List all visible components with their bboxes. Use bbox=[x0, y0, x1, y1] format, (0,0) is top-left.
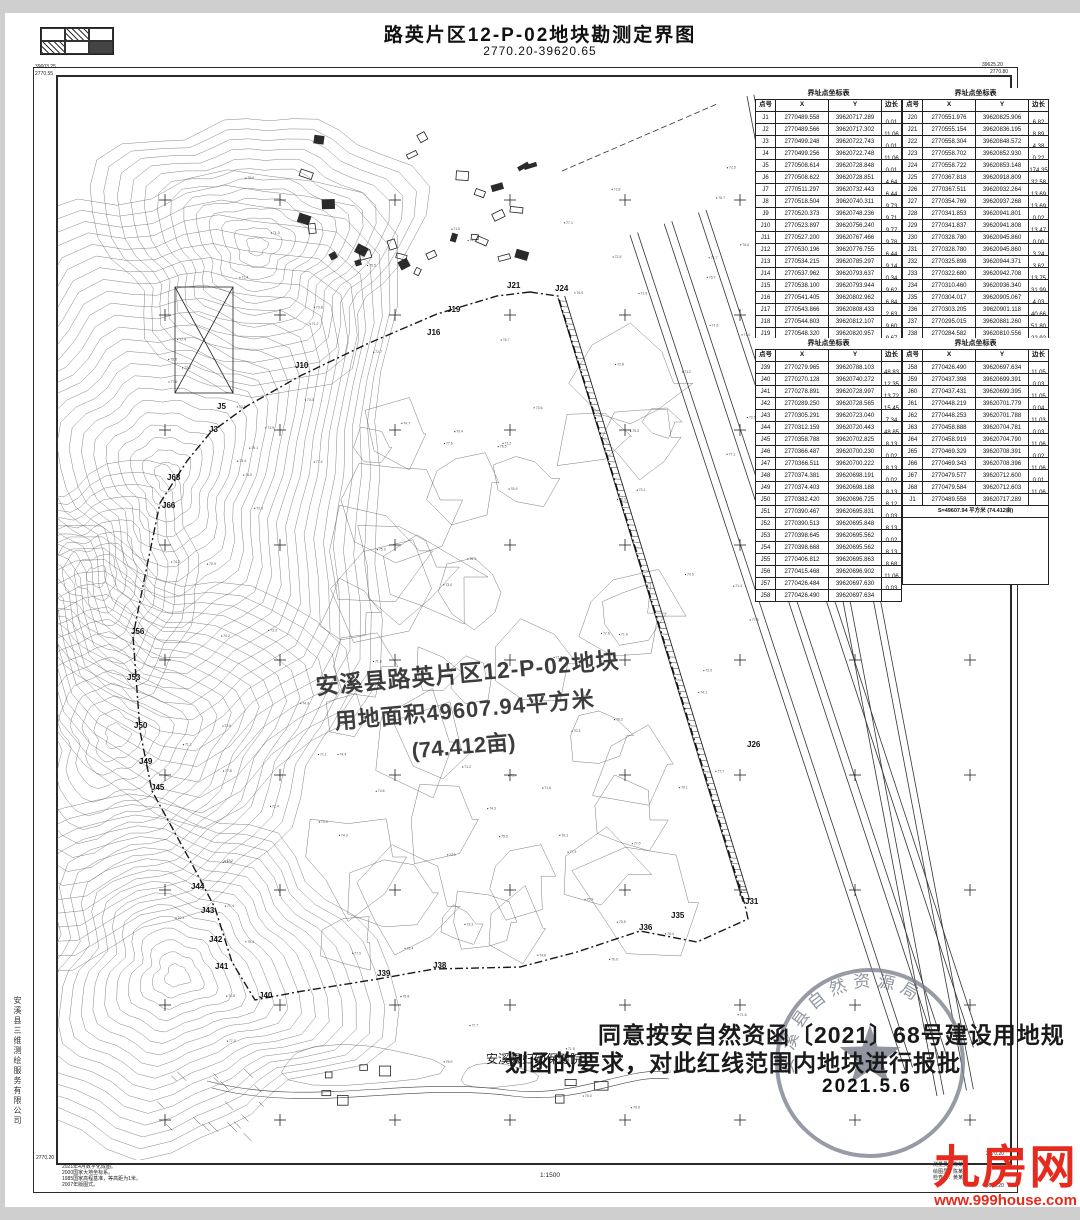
svg-text:76.6: 76.6 bbox=[742, 243, 749, 247]
table-row: J632770458.88839620704.7810.03 bbox=[903, 422, 1049, 434]
table-row: J182770544.80339620812.1079.60 bbox=[756, 316, 902, 328]
coordinate-table-2-right: 界址点坐标表点号XY边长J582770426.49039620697.63411… bbox=[902, 338, 1049, 585]
col-header: 点号 bbox=[756, 350, 776, 362]
svg-text:75.8: 75.8 bbox=[402, 995, 409, 999]
coordinate-table-2-left: 界址点坐标表点号XY边长J392770279.96539620788.10348… bbox=[755, 338, 902, 602]
svg-text:74.3: 74.3 bbox=[173, 560, 180, 564]
svg-text:71.3: 71.3 bbox=[273, 231, 280, 235]
table-row: J392770279.96539620788.10348.83 bbox=[756, 362, 902, 374]
table-row: J152770538.10039620793.9449.62 bbox=[756, 280, 902, 292]
corner-label: 2770.20 bbox=[36, 1156, 54, 1161]
coordinate-table: 点号XY边长J202770551.97639620825.9066.82J212… bbox=[902, 99, 1049, 352]
watermark-logo: 九房网 bbox=[933, 1142, 1078, 1193]
table-row: J552770406.81239620695.8638.68 bbox=[756, 554, 902, 566]
col-header: Y bbox=[976, 350, 1029, 362]
svg-text:76.9: 76.9 bbox=[576, 291, 583, 295]
svg-text:75.3: 75.3 bbox=[379, 548, 386, 552]
table-row: J652770469.32939620708.3910.02 bbox=[903, 446, 1049, 458]
table-row: J202770551.97639620825.9066.82 bbox=[903, 112, 1049, 124]
table-row: J102770523.89739620756.2409.77 bbox=[756, 220, 902, 232]
svg-text:72.6: 72.6 bbox=[224, 724, 231, 728]
svg-text:72.0: 72.0 bbox=[256, 506, 263, 510]
svg-text:72.4: 72.4 bbox=[179, 338, 186, 342]
scan-edge-top bbox=[0, 0, 1080, 13]
table-row: J72770511.29739620732.4436.44 bbox=[756, 184, 902, 196]
table-row: J532770398.64539620695.5620.02 bbox=[756, 530, 902, 542]
table-row: J472770366.51139620700.2228.13 bbox=[756, 458, 902, 470]
svg-text:71.2: 71.2 bbox=[312, 322, 319, 326]
coordinate-table-block-2: 界址点坐标表点号XY边长J392770279.96539620788.10348… bbox=[755, 338, 1049, 602]
svg-text:70.1: 70.1 bbox=[561, 833, 568, 837]
table-title: 界址点坐标表 bbox=[755, 338, 902, 349]
svg-text:76.9: 76.9 bbox=[511, 487, 518, 491]
table-row: J22770489.56639620717.30211.06 bbox=[756, 124, 902, 136]
col-header: 边长 bbox=[1029, 350, 1049, 362]
svg-text:74.3: 74.3 bbox=[341, 833, 348, 837]
table-row: J362770303.20539620901.11840.66 bbox=[903, 304, 1049, 316]
table-row: J432770305.29139620723.0407.34 bbox=[756, 410, 902, 422]
boundary-point-label: J38 bbox=[433, 961, 447, 970]
svg-text:75.0: 75.0 bbox=[170, 357, 177, 361]
svg-text:76.4: 76.4 bbox=[667, 932, 674, 936]
corner-label: 39625.20 bbox=[982, 63, 1003, 68]
svg-text:75.1: 75.1 bbox=[251, 446, 258, 450]
svg-text:73.4: 73.4 bbox=[239, 459, 246, 463]
svg-text:75.9: 75.9 bbox=[446, 1060, 453, 1064]
svg-text:71.4: 71.4 bbox=[241, 276, 248, 280]
svg-text:73.3: 73.3 bbox=[270, 628, 277, 632]
svg-text:74.0: 74.0 bbox=[245, 473, 252, 477]
svg-text:71.6: 71.6 bbox=[544, 786, 551, 790]
svg-text:70.5: 70.5 bbox=[687, 572, 694, 576]
svg-text:71.2: 71.2 bbox=[684, 370, 691, 374]
scan-edge-bottom bbox=[0, 1207, 1080, 1220]
table-row: J312770328.78039620945.8603.24 bbox=[903, 244, 1049, 256]
svg-text:72.8: 72.8 bbox=[614, 188, 621, 192]
svg-text:74.9: 74.9 bbox=[302, 701, 309, 705]
table-row: J402770270.12839620740.27212.35 bbox=[756, 374, 902, 386]
boundary-point-label: J45 bbox=[151, 783, 165, 792]
svg-text:75.3: 75.3 bbox=[632, 429, 639, 433]
svg-text:70.0: 70.0 bbox=[585, 1094, 592, 1098]
table-row: J542770398.66839620695.5628.13 bbox=[756, 542, 902, 554]
svg-text:72.5: 72.5 bbox=[729, 166, 736, 170]
svg-text:73.6: 73.6 bbox=[536, 406, 543, 410]
svg-text:77.7: 77.7 bbox=[471, 1024, 478, 1028]
svg-text:74.7: 74.7 bbox=[403, 421, 410, 425]
table-row: J452770358.78839620702.8258.13 bbox=[756, 434, 902, 446]
svg-text:71.0: 71.0 bbox=[640, 291, 647, 295]
table-row: J252770367.81839620918.80932.58 bbox=[903, 172, 1049, 184]
svg-text:76.0: 76.0 bbox=[247, 176, 254, 180]
svg-text:72.8: 72.8 bbox=[617, 362, 624, 366]
table-row: J482770374.38139620698.1910.02 bbox=[756, 470, 902, 482]
area-summary: S=49607.94 平方米 (74.412亩) bbox=[903, 506, 1049, 518]
boundary-point-label: J68 bbox=[167, 473, 181, 482]
boundary-point-label: J26 bbox=[747, 740, 761, 749]
map-note-line: 2007年版图式。 bbox=[62, 1182, 141, 1188]
svg-text:70.2: 70.2 bbox=[177, 916, 184, 920]
svg-text:77.9: 77.9 bbox=[354, 951, 361, 955]
table-row: J442770312.15939620720.44348.85 bbox=[756, 422, 902, 434]
svg-text:77.6: 77.6 bbox=[446, 441, 453, 445]
svg-text:73.0: 73.0 bbox=[445, 583, 452, 587]
boundary-point-label: J10 bbox=[295, 361, 309, 370]
corner-label: 2770.80 bbox=[990, 70, 1008, 75]
table-row: J332770322.68039620942.70813.75 bbox=[903, 268, 1049, 280]
table-row: J342770310.46039620936.34031.99 bbox=[903, 280, 1049, 292]
table-row: J172770543.86639620808.4332.63 bbox=[756, 304, 902, 316]
empty-table-area bbox=[902, 518, 1049, 585]
survey-sheet: 路英片区12-P-02地块勘测定界图 2770.20-39620.65 3960… bbox=[0, 0, 1080, 1220]
col-header: 点号 bbox=[903, 100, 923, 112]
svg-text:77.4: 77.4 bbox=[227, 904, 234, 908]
boundary-point-label: J50 bbox=[134, 721, 148, 730]
boundary-point-label: J35 bbox=[671, 911, 685, 920]
table-row: J512770390.46739620695.8310.03 bbox=[756, 506, 902, 518]
table-row: J462770366.48739620700.2300.02 bbox=[756, 446, 902, 458]
svg-text:71.4: 71.4 bbox=[735, 584, 742, 588]
table-row: J52770508.61439620728.8480.01 bbox=[756, 160, 902, 172]
col-header: X bbox=[923, 350, 976, 362]
boundary-point-label: J66 bbox=[162, 501, 176, 510]
table-row: J12770489.55839620717.2890.01 bbox=[756, 112, 902, 124]
table-row: J412770278.89139620728.99713.72 bbox=[756, 386, 902, 398]
table-row: J232770558.70239620852.9300.22 bbox=[903, 148, 1049, 160]
survey-company: 安溪县三维测绘服务有限公司 bbox=[12, 996, 23, 1126]
table-row: J612770448.21939620701.7790.04 bbox=[903, 398, 1049, 410]
table-title: 界址点坐标表 bbox=[902, 88, 1049, 99]
table-row: J242770558.72239620853.148174.35 bbox=[903, 160, 1049, 172]
boundary-point-label: J16 bbox=[427, 328, 441, 337]
boundary-point-label: J42 bbox=[209, 935, 223, 944]
table-row: J622770448.25339620701.78811.03 bbox=[903, 410, 1049, 422]
table-row: J662770469.34339620708.39611.06 bbox=[903, 458, 1049, 470]
table-row: J222770558.30439620848.5724.38 bbox=[903, 136, 1049, 148]
svg-text:73.9: 73.9 bbox=[267, 426, 274, 430]
table-row: J492770374.40339620698.1888.13 bbox=[756, 482, 902, 494]
table-row: J62770508.62239620728.8514.64 bbox=[756, 172, 902, 184]
svg-text:76.0: 76.0 bbox=[611, 957, 618, 961]
svg-text:71.0: 71.0 bbox=[453, 227, 460, 231]
svg-text:73.0: 73.0 bbox=[307, 398, 314, 402]
coordinate-table-1-left: 界址点坐标表点号XY边长J12770489.55839620717.2890.0… bbox=[755, 88, 902, 352]
coordinate-table-block-1: 界址点坐标表点号XY边长J12770489.55839620717.2890.0… bbox=[755, 88, 1049, 352]
table-row: J562770415.46839620696.90211.06 bbox=[756, 566, 902, 578]
svg-text:72.7: 72.7 bbox=[375, 350, 382, 354]
boundary-point-label: J5 bbox=[217, 402, 226, 411]
table-row: J92770520.37339620748.2369.71 bbox=[756, 208, 902, 220]
svg-text:72.2: 72.2 bbox=[449, 853, 456, 857]
svg-text:72.0: 72.0 bbox=[705, 669, 712, 673]
col-header: Y bbox=[829, 350, 882, 362]
svg-text:75.4: 75.4 bbox=[247, 940, 254, 944]
boundary-point-label: J31 bbox=[745, 897, 759, 906]
svg-text:77.4: 77.4 bbox=[316, 460, 323, 464]
col-header: X bbox=[776, 100, 829, 112]
table-row: J422770289.25039620728.56515.45 bbox=[756, 398, 902, 410]
table-row: J212770555.15439620836.1958.89 bbox=[903, 124, 1049, 136]
svg-text:75.9: 75.9 bbox=[587, 897, 594, 901]
svg-text:71.2: 71.2 bbox=[505, 441, 512, 445]
scan-edge-left bbox=[0, 0, 5, 1220]
svg-text:71.5: 71.5 bbox=[712, 323, 719, 327]
corner-label: 2770.55 bbox=[35, 72, 53, 77]
table-row: J142770537.96239620793.6370.34 bbox=[756, 268, 902, 280]
table-row: J32770499.24839620722.7430.01 bbox=[756, 136, 902, 148]
boundary-point-label: J40 bbox=[259, 991, 273, 1000]
embankment bbox=[558, 296, 750, 902]
svg-text:70.9: 70.9 bbox=[633, 1106, 640, 1110]
boundary-point-label: J3 bbox=[209, 425, 218, 434]
svg-text:71.9: 71.9 bbox=[621, 632, 628, 636]
coordinate-table: 点号XY边长J392770279.96539620788.10348.83J40… bbox=[755, 349, 902, 602]
table-row: J162770541.40539620802.9626.84 bbox=[756, 292, 902, 304]
svg-text:75.5: 75.5 bbox=[369, 264, 376, 268]
boundary-point-label: J24 bbox=[555, 284, 569, 293]
svg-text:73.4: 73.4 bbox=[510, 774, 517, 778]
svg-text:77.8: 77.8 bbox=[225, 769, 232, 773]
svg-text:72.4: 72.4 bbox=[272, 804, 279, 808]
table-title: 界址点坐标表 bbox=[902, 338, 1049, 349]
svg-text:70.9: 70.9 bbox=[209, 562, 216, 566]
svg-text:75.5: 75.5 bbox=[501, 835, 508, 839]
svg-text:73.4: 73.4 bbox=[407, 946, 414, 950]
coordinate-table: 点号XY边长J12770489.55839620717.2890.01J2277… bbox=[755, 99, 902, 352]
boundary-point-label: J36 bbox=[639, 923, 653, 932]
svg-text:73.1: 73.1 bbox=[639, 488, 646, 492]
svg-text:77.0: 77.0 bbox=[634, 842, 641, 846]
table-row: J522770390.51339620695.8488.13 bbox=[756, 518, 902, 530]
svg-text:70.2: 70.2 bbox=[223, 634, 230, 638]
boundary-point-label: J49 bbox=[139, 757, 153, 766]
table-row: J282770341.85339620941.8010.02 bbox=[903, 208, 1049, 220]
svg-text:77.1: 77.1 bbox=[566, 221, 573, 225]
col-header: X bbox=[776, 350, 829, 362]
col-header: 边长 bbox=[1029, 100, 1049, 112]
svg-text:74.1: 74.1 bbox=[700, 690, 707, 694]
table-row: J642770458.91939620704.79011.06 bbox=[903, 434, 1049, 446]
svg-text:76.4: 76.4 bbox=[469, 557, 476, 561]
sheet-number: 2770.20-39620.65 bbox=[0, 44, 1080, 58]
coordinate-table: 点号XY边长J582770426.49039620697.63411.05J59… bbox=[902, 349, 1049, 518]
boundary-point-label: J56 bbox=[131, 627, 145, 636]
svg-text:77.7: 77.7 bbox=[717, 769, 724, 773]
col-header: 点号 bbox=[756, 100, 776, 112]
svg-text:76.7: 76.7 bbox=[718, 196, 725, 200]
svg-text:71.1: 71.1 bbox=[185, 743, 192, 747]
table-row: J672770479.57739620712.6000.01 bbox=[903, 470, 1049, 482]
svg-text:73.8: 73.8 bbox=[316, 305, 323, 309]
boundary-point-label: J41 bbox=[215, 962, 229, 971]
boundary-point-label: J19 bbox=[447, 305, 461, 314]
approval-text-line2: 划函的要求，对此红线范围内地块进行报批 bbox=[505, 1044, 961, 1078]
table-row: J602770437.43139620699.39511.05 bbox=[903, 386, 1049, 398]
table-row: J122770530.19639620776.7556.44 bbox=[756, 244, 902, 256]
table-row: J592770437.39839620699.3910.03 bbox=[903, 374, 1049, 386]
svg-text:72.5: 72.5 bbox=[615, 255, 622, 259]
page-title: 路英片区12-P-02地块勘测定界图 bbox=[0, 20, 1080, 47]
svg-text:75.5: 75.5 bbox=[619, 920, 626, 924]
table-row: J302770328.78039620945.8600.00 bbox=[903, 232, 1049, 244]
col-header: 边长 bbox=[882, 100, 902, 112]
table-row: J372770295.01539620881.26051.80 bbox=[903, 316, 1049, 328]
boundary-point-label: J21 bbox=[507, 281, 521, 290]
svg-text:71.2: 71.2 bbox=[464, 765, 471, 769]
table-row: J132770534.21539620785.2979.14 bbox=[756, 256, 902, 268]
svg-text:70.4: 70.4 bbox=[456, 430, 463, 434]
watermark-url: www.999house.com bbox=[933, 1193, 1078, 1208]
boundary-point-label: J43 bbox=[201, 906, 215, 915]
col-header: 点号 bbox=[903, 350, 923, 362]
table-title: 界址点坐标表 bbox=[755, 88, 902, 99]
boundary-point-label: J53 bbox=[127, 673, 141, 682]
col-header: X bbox=[923, 100, 976, 112]
col-header: Y bbox=[976, 100, 1029, 112]
col-header: 边长 bbox=[882, 350, 902, 362]
svg-text:71.8: 71.8 bbox=[228, 994, 235, 998]
svg-text:76.7: 76.7 bbox=[503, 338, 510, 342]
corner-label: 39603.25 bbox=[35, 65, 56, 70]
watermark: 九房网 www.999house.com bbox=[933, 1142, 1078, 1208]
map-scale: 1:1500 bbox=[470, 1172, 630, 1179]
svg-text:70.1: 70.1 bbox=[681, 786, 688, 790]
col-header: Y bbox=[829, 100, 882, 112]
table-row: J322770325.89839620944.3713.62 bbox=[903, 256, 1049, 268]
svg-text:77.0: 77.0 bbox=[229, 1039, 236, 1043]
table-row: J82770518.50439620740.3119.73 bbox=[756, 196, 902, 208]
table-row: J292770341.83739620941.80813.47 bbox=[903, 220, 1049, 232]
svg-text:74.6: 74.6 bbox=[378, 789, 385, 793]
table-row: J42770499.25639620722.74811.06 bbox=[756, 148, 902, 160]
svg-text:72.2: 72.2 bbox=[226, 859, 233, 863]
svg-text:77.6: 77.6 bbox=[603, 631, 610, 635]
svg-text:77.3: 77.3 bbox=[570, 850, 577, 854]
table-row: J582770426.49039620697.63411.05 bbox=[903, 362, 1049, 374]
svg-text:73.3: 73.3 bbox=[466, 923, 473, 927]
svg-text:74.3: 74.3 bbox=[489, 807, 496, 811]
table-row: J352770304.01739620905.0674.03 bbox=[903, 292, 1049, 304]
boundary-point-label: J39 bbox=[377, 969, 391, 978]
approval-date: 2021.5.6 bbox=[822, 1076, 912, 1098]
table-row: J272770354.76939620937.26813.69 bbox=[903, 196, 1049, 208]
boundary-point-label: J44 bbox=[191, 882, 205, 891]
table-row: J262770367.51139620932.26413.69 bbox=[903, 184, 1049, 196]
table-row: J502770382.42039620696.7258.12 bbox=[756, 494, 902, 506]
svg-text:77.6: 77.6 bbox=[171, 380, 178, 384]
table-row: J12770489.55839620717.289 bbox=[903, 494, 1049, 506]
table-row: J582770426.49039620697.634 bbox=[756, 590, 902, 602]
svg-text:75.7: 75.7 bbox=[709, 275, 716, 279]
svg-text:70.9: 70.9 bbox=[321, 820, 328, 824]
svg-text:77.1: 77.1 bbox=[729, 452, 736, 456]
table-row: J572770426.48439620697.6300.03 bbox=[756, 578, 902, 590]
coordinate-table-1-right: 界址点坐标表点号XY边长J202770551.97639620825.9066.… bbox=[902, 88, 1049, 352]
table-row: J682770479.58439620712.60311.06 bbox=[903, 482, 1049, 494]
svg-text:74.8: 74.8 bbox=[539, 953, 546, 957]
table-row: J112770527.20039620767.4669.78 bbox=[756, 232, 902, 244]
map-notes: 2021年4月数字化成图。2000国家大地坐标系。1985国家高程基准，等高距为… bbox=[62, 1164, 141, 1188]
